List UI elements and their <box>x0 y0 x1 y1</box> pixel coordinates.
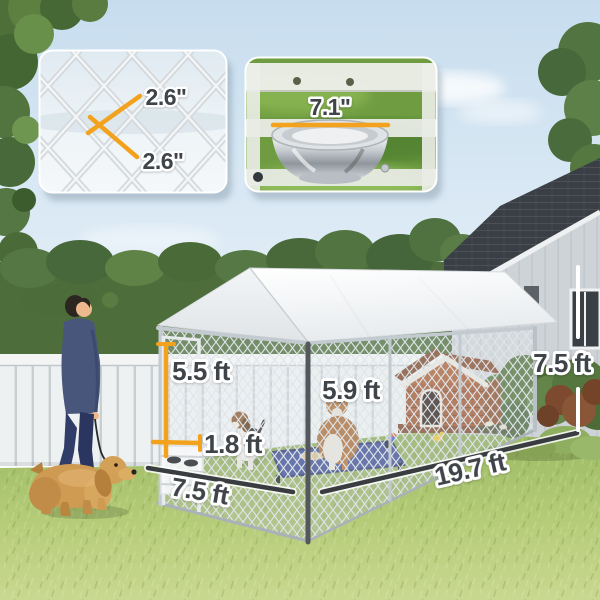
frame-bolt <box>381 164 389 172</box>
mesh-size-label-top: 2.6" <box>146 84 187 110</box>
frame-knob <box>253 172 263 182</box>
inset-mesh-closeup: 2.6" 2.6" <box>23 50 243 201</box>
inset-bowl-closeup: 7.1" <box>230 57 460 205</box>
interior-height-label: 5.9 ft <box>322 375 381 405</box>
overall-height-label: 7.5 ft <box>533 348 592 378</box>
product-scene: 5.5 ft 1.8 ft 7.5 ft 5.9 ft 19.7 ft 7.5 … <box>0 0 600 600</box>
door-height-label: 5.5 ft <box>172 356 231 386</box>
door-width-label: 1.8 ft <box>204 429 263 459</box>
scene-canvas: 5.5 ft 1.8 ft 7.5 ft 5.9 ft 19.7 ft 7.5 … <box>0 0 600 600</box>
station-bowl <box>184 460 198 467</box>
house-window <box>571 290 600 348</box>
bowl-diameter-label: 7.1" <box>310 94 351 120</box>
station-bowl <box>167 457 181 464</box>
mesh-size-label-bottom: 2.6" <box>143 148 184 174</box>
